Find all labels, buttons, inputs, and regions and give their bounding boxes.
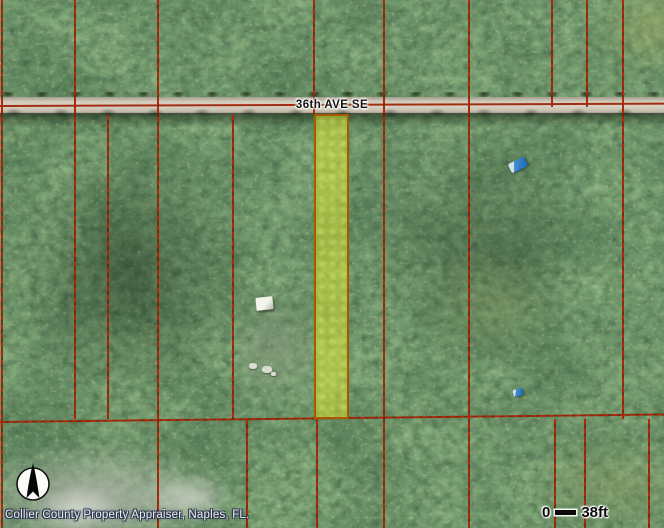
scale-start-label: 0 bbox=[542, 504, 550, 521]
scale-end-label: 38ft bbox=[581, 504, 608, 521]
scale-bar: 0 38ft bbox=[542, 504, 608, 521]
north-arrow-icon bbox=[10, 461, 56, 505]
attribution-text: Collier County Property Appraiser, Naple… bbox=[5, 509, 249, 521]
scale-bar-segment bbox=[555, 510, 576, 515]
landmarks-layer bbox=[0, 0, 664, 528]
debris-object bbox=[271, 372, 276, 376]
street-label: 36th AVE SE bbox=[286, 99, 378, 111]
map-viewport[interactable]: 36th AVE SE Collier County Property Appr… bbox=[0, 0, 664, 528]
blue-tarp-object bbox=[508, 157, 529, 174]
shed-structure bbox=[255, 296, 273, 311]
blue-tarp-object bbox=[512, 388, 523, 397]
debris-object bbox=[249, 363, 257, 369]
